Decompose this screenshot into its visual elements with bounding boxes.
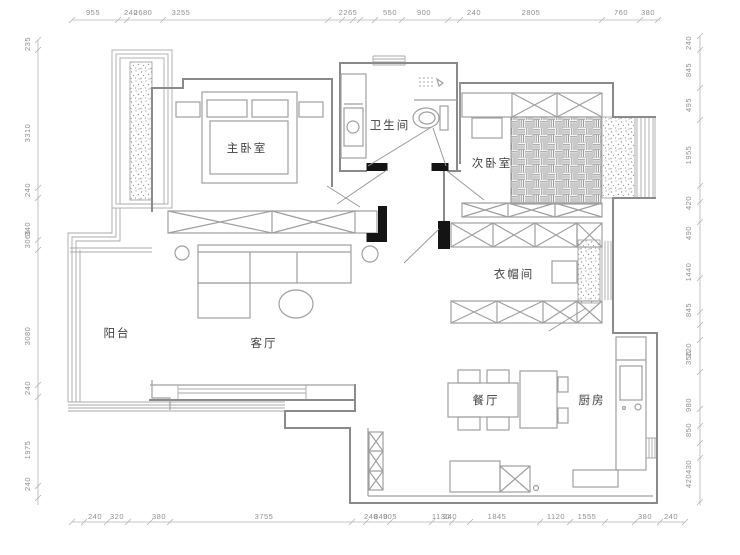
floor-plan-page: 955 240 2680 3255 2265 550 900 240 2805 … (0, 0, 740, 555)
furniture (168, 74, 646, 492)
dim-label: 1120 (547, 512, 565, 521)
dim-label: 2265 (339, 8, 358, 17)
nightstand (472, 118, 502, 138)
room-label-second-bedroom: 次卧室 (472, 156, 513, 170)
dim-label: 235 (23, 37, 32, 51)
dim-label: 1975 (23, 441, 32, 460)
room-label-balcony: 阳台 (104, 326, 131, 340)
dim-label: 420 (684, 474, 693, 488)
dim-label: 380 (638, 512, 652, 521)
dim-label: 3755 (255, 512, 274, 521)
dim-label: 240 (23, 477, 32, 491)
dim-label: 320 (110, 512, 124, 521)
chair (558, 377, 568, 392)
dim-label: 3310 (23, 124, 32, 143)
dim-label: 760 (614, 8, 628, 17)
dim-label: 420 (684, 196, 693, 210)
dim-label: 2805 (522, 8, 541, 17)
dresser (552, 261, 577, 283)
dim-label: 1955 (684, 146, 693, 165)
dim-label: 1440 (684, 263, 693, 282)
chair (458, 417, 480, 430)
dim-label: 845 (684, 63, 693, 77)
dim-label: 240 (23, 381, 32, 395)
bath-vanity (341, 74, 366, 158)
dining-table (520, 371, 557, 428)
dim-label: 380 (152, 512, 166, 521)
dim-label: 900 (417, 8, 431, 17)
shower-head (437, 79, 443, 86)
dim-label: 240 (23, 183, 32, 197)
room-label-cloakroom: 衣帽间 (494, 267, 535, 281)
dim-label: 240 (443, 512, 457, 521)
kitchen-sink (620, 366, 642, 400)
floor-plan-canvas: 955 240 2680 3255 2265 550 900 240 2805 … (0, 0, 740, 555)
tatami-bed (511, 117, 601, 204)
dim-label: 980 (684, 398, 693, 412)
wardrobe-cabinet (462, 93, 602, 117)
kitchen-counter (616, 337, 646, 470)
room-label-living-room: 客厅 (251, 336, 278, 350)
side-table (175, 246, 189, 260)
side-table (362, 246, 378, 262)
room-label-master-bedroom: 主卧室 (227, 141, 268, 155)
dim-label: 3255 (172, 8, 191, 17)
dim-label: 850 (684, 423, 693, 437)
entry-bench (573, 470, 618, 487)
dim-label: 380 (641, 8, 655, 17)
dim-label: 1555 (578, 512, 597, 521)
coffee-table (279, 290, 313, 318)
dim-label: 490 (684, 226, 693, 240)
dim-label: 240 (467, 8, 481, 17)
shower-spray-dots (419, 77, 433, 87)
chair (558, 408, 568, 423)
toilet (440, 106, 448, 130)
dim-label: 2680 (134, 8, 153, 17)
dim-label: 955 (86, 8, 100, 17)
dim-label: 3065 (23, 230, 32, 249)
dim-label: 550 (383, 8, 397, 17)
dim-label: 240 (684, 36, 693, 50)
sofa (198, 245, 351, 283)
dim-label: 430 (684, 460, 693, 474)
dim-label: 350 (684, 351, 693, 365)
room-label-kitchen: 厨房 (579, 394, 606, 407)
dim-label: 3080 (23, 327, 32, 346)
master-bed (202, 92, 297, 183)
dim-label: 905 (383, 512, 397, 521)
room-label-bathroom: 卫生间 (370, 118, 411, 132)
dim-label: 1845 (488, 512, 507, 521)
entry-cabinet (450, 461, 500, 492)
room-label-dining-room: 餐厅 (473, 393, 500, 407)
dim-label: 495 (684, 98, 693, 112)
chair (487, 370, 509, 383)
dim-label: 240 (88, 512, 102, 521)
dim-label: 845 (684, 303, 693, 317)
dim-label: 240 (664, 512, 678, 521)
chair (458, 370, 480, 383)
chair (487, 417, 509, 430)
